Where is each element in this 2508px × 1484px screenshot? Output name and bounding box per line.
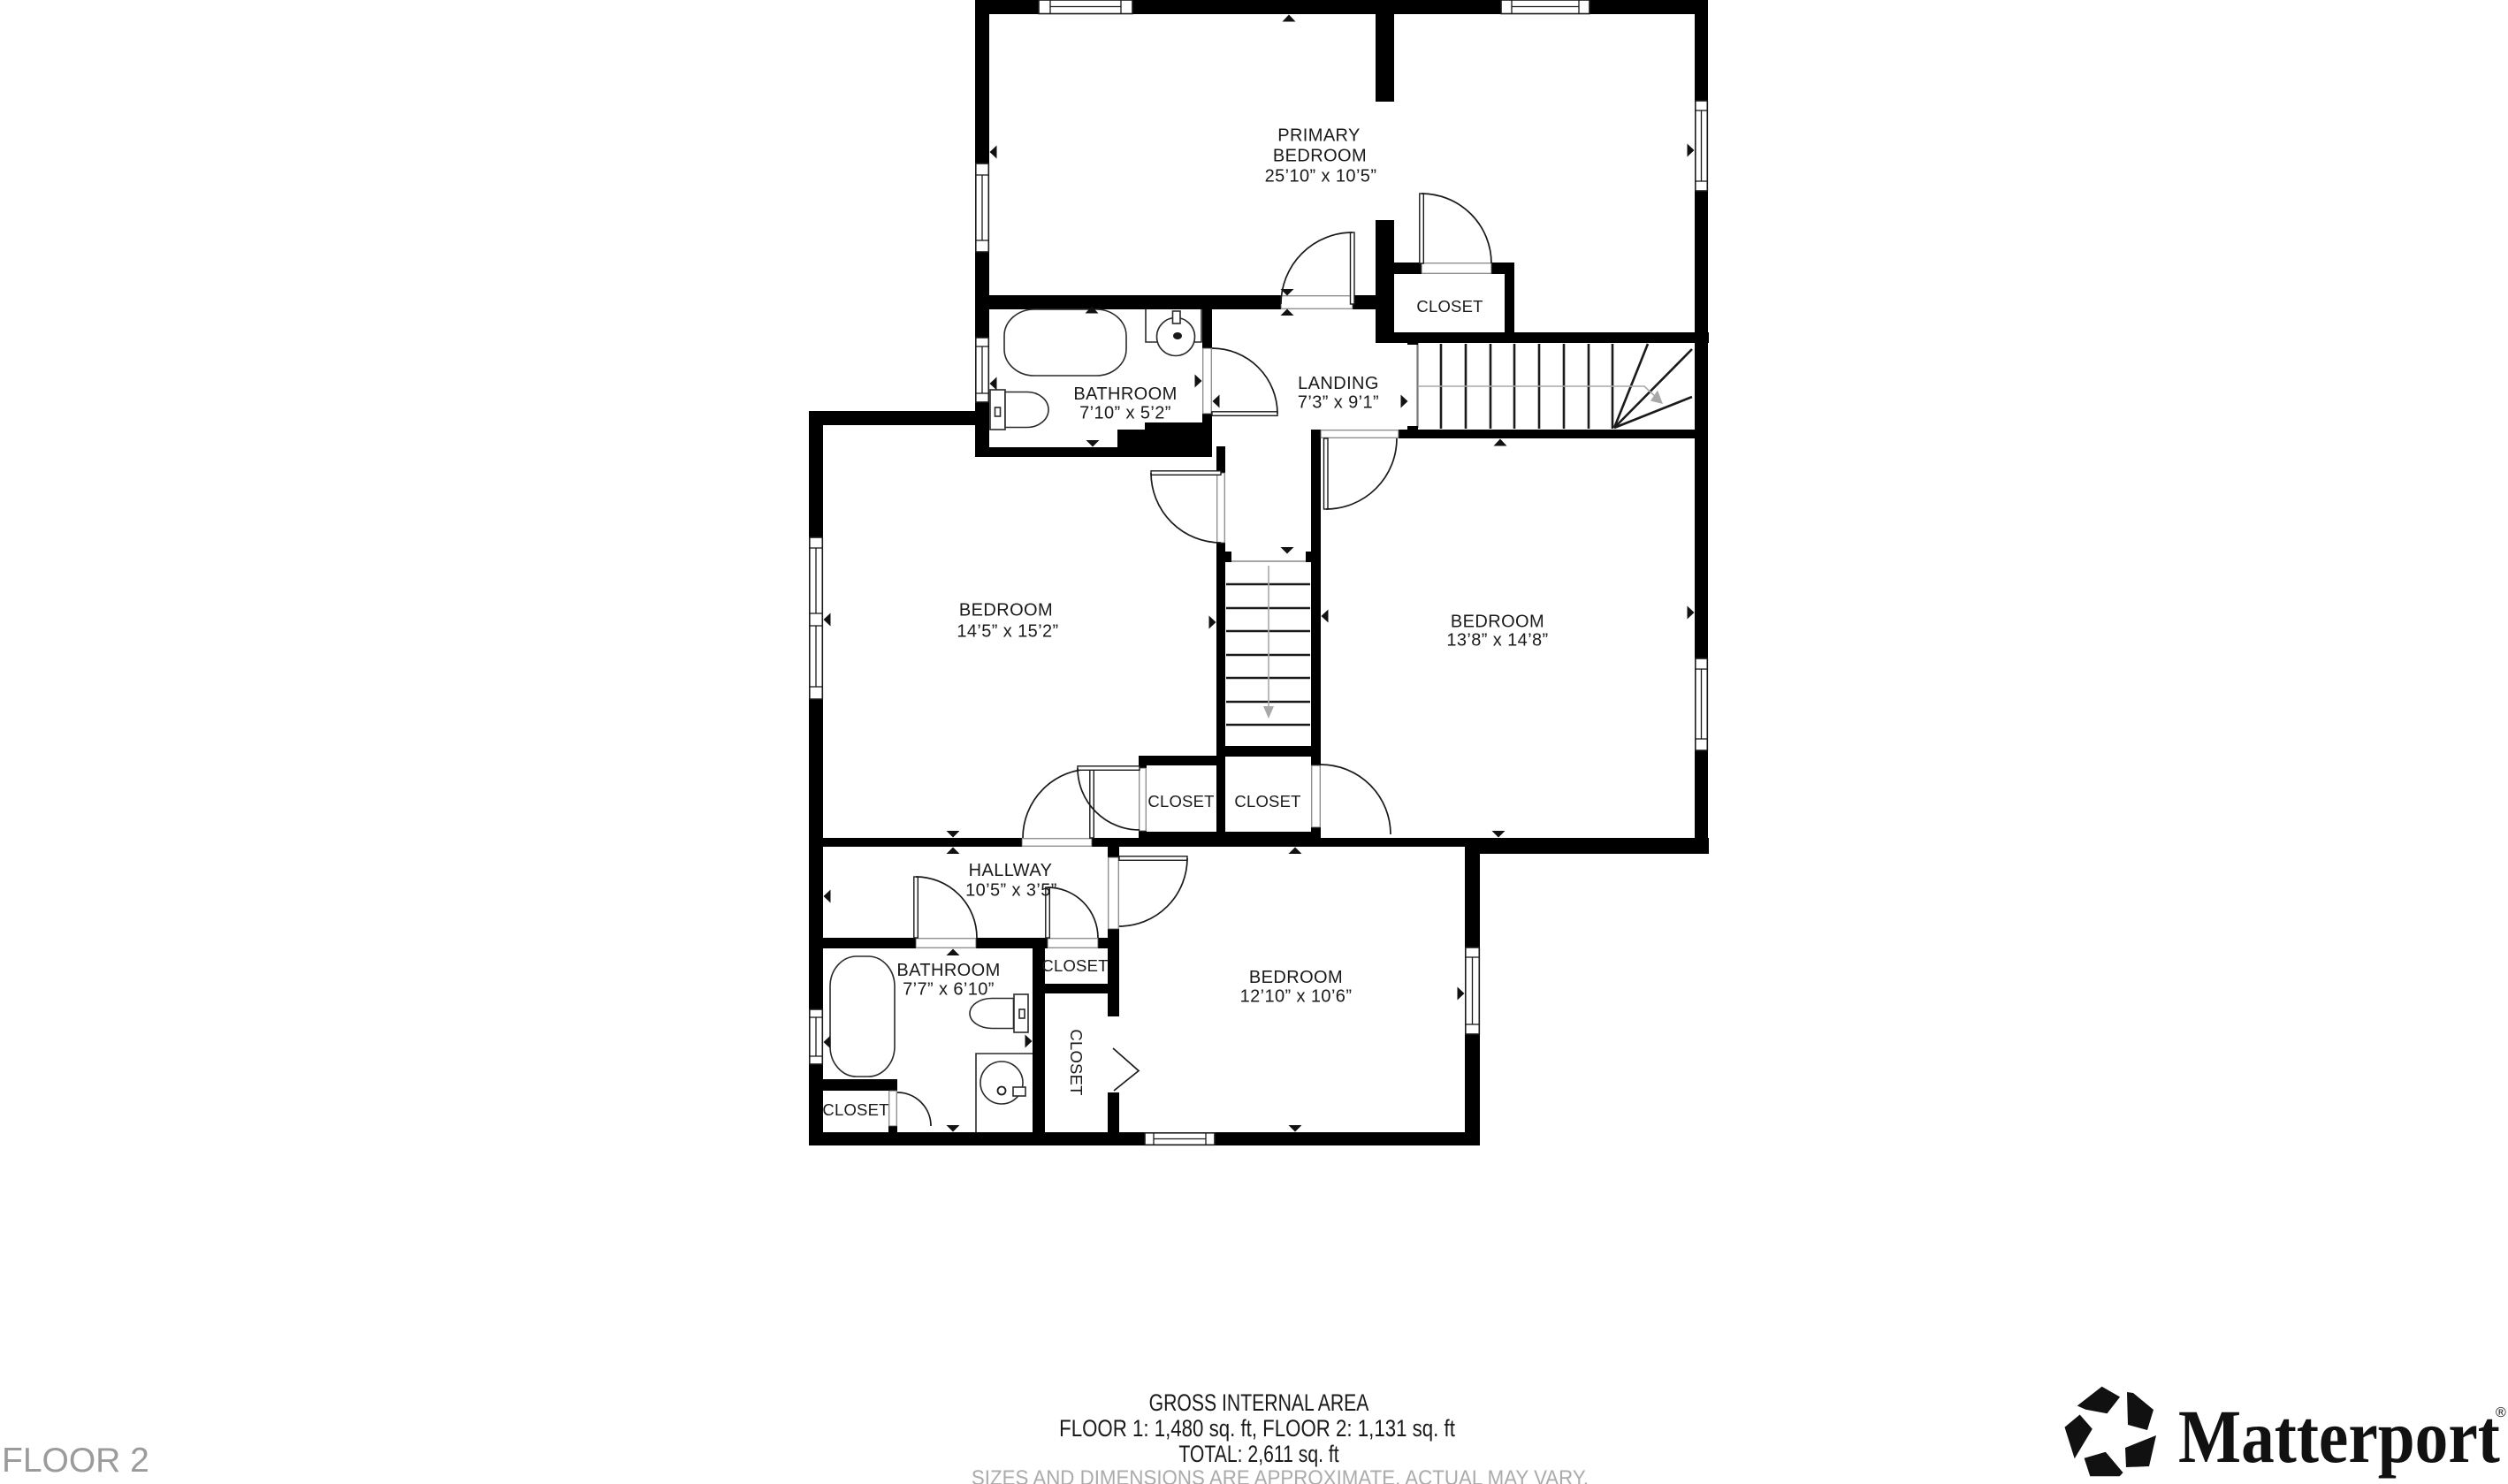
svg-text:HALLWAY: HALLWAY xyxy=(969,861,1053,880)
svg-text:CLOSET: CLOSET xyxy=(1416,297,1483,316)
svg-text:7’10” x 5’2”: 7’10” x 5’2” xyxy=(1079,404,1171,423)
svg-text:CLOSET: CLOSET xyxy=(1234,792,1300,810)
svg-text:Matterport: Matterport xyxy=(2178,1395,2500,1479)
svg-text:LANDING: LANDING xyxy=(1298,374,1379,393)
svg-text:®: ® xyxy=(2496,1405,2506,1420)
svg-text:BATHROOM: BATHROOM xyxy=(1073,384,1177,404)
svg-text:FLOOR 2: FLOOR 2 xyxy=(2,1442,149,1480)
svg-text:TOTAL: 2,611 sq. ft: TOTAL: 2,611 sq. ft xyxy=(1178,1442,1339,1468)
svg-text:CLOSET: CLOSET xyxy=(1067,1029,1086,1095)
svg-text:CLOSET: CLOSET xyxy=(1041,956,1108,975)
svg-text:14’5” x 15’2”: 14’5” x 15’2” xyxy=(957,622,1058,642)
svg-text:BATHROOM: BATHROOM xyxy=(896,961,1000,980)
svg-text:CLOSET: CLOSET xyxy=(1147,792,1214,810)
svg-text:FLOOR 1: 1,480 sq. ft, FLOOR 2: FLOOR 1: 1,480 sq. ft, FLOOR 2: 1,131 sq… xyxy=(1059,1416,1455,1442)
svg-text:BEDROOM: BEDROOM xyxy=(1273,147,1367,166)
svg-text:10’5” x 3’5”: 10’5” x 3’5” xyxy=(965,881,1057,901)
svg-text:BEDROOM: BEDROOM xyxy=(959,601,1053,620)
svg-text:BEDROOM: BEDROOM xyxy=(1451,613,1544,632)
svg-text:BEDROOM: BEDROOM xyxy=(1249,968,1343,987)
svg-text:13’8” x 14’8”: 13’8” x 14’8” xyxy=(1446,631,1548,651)
svg-text:PRIMARY: PRIMARY xyxy=(1277,126,1361,146)
svg-text:12’10” x 10’6”: 12’10” x 10’6” xyxy=(1240,987,1353,1007)
svg-text:25’10” x 10’5”: 25’10” x 10’5” xyxy=(1265,167,1377,186)
svg-text:GROSS INTERNAL AREA: GROSS INTERNAL AREA xyxy=(1149,1390,1369,1417)
svg-text:SIZES AND DIMENSIONS ARE APPRO: SIZES AND DIMENSIONS ARE APPROXIMATE, AC… xyxy=(972,1465,1589,1484)
svg-text:7’3” x 9’1”: 7’3” x 9’1” xyxy=(1298,393,1379,413)
svg-text:CLOSET: CLOSET xyxy=(822,1100,888,1119)
svg-text:7’7” x 6’10”: 7’7” x 6’10” xyxy=(903,980,995,1000)
